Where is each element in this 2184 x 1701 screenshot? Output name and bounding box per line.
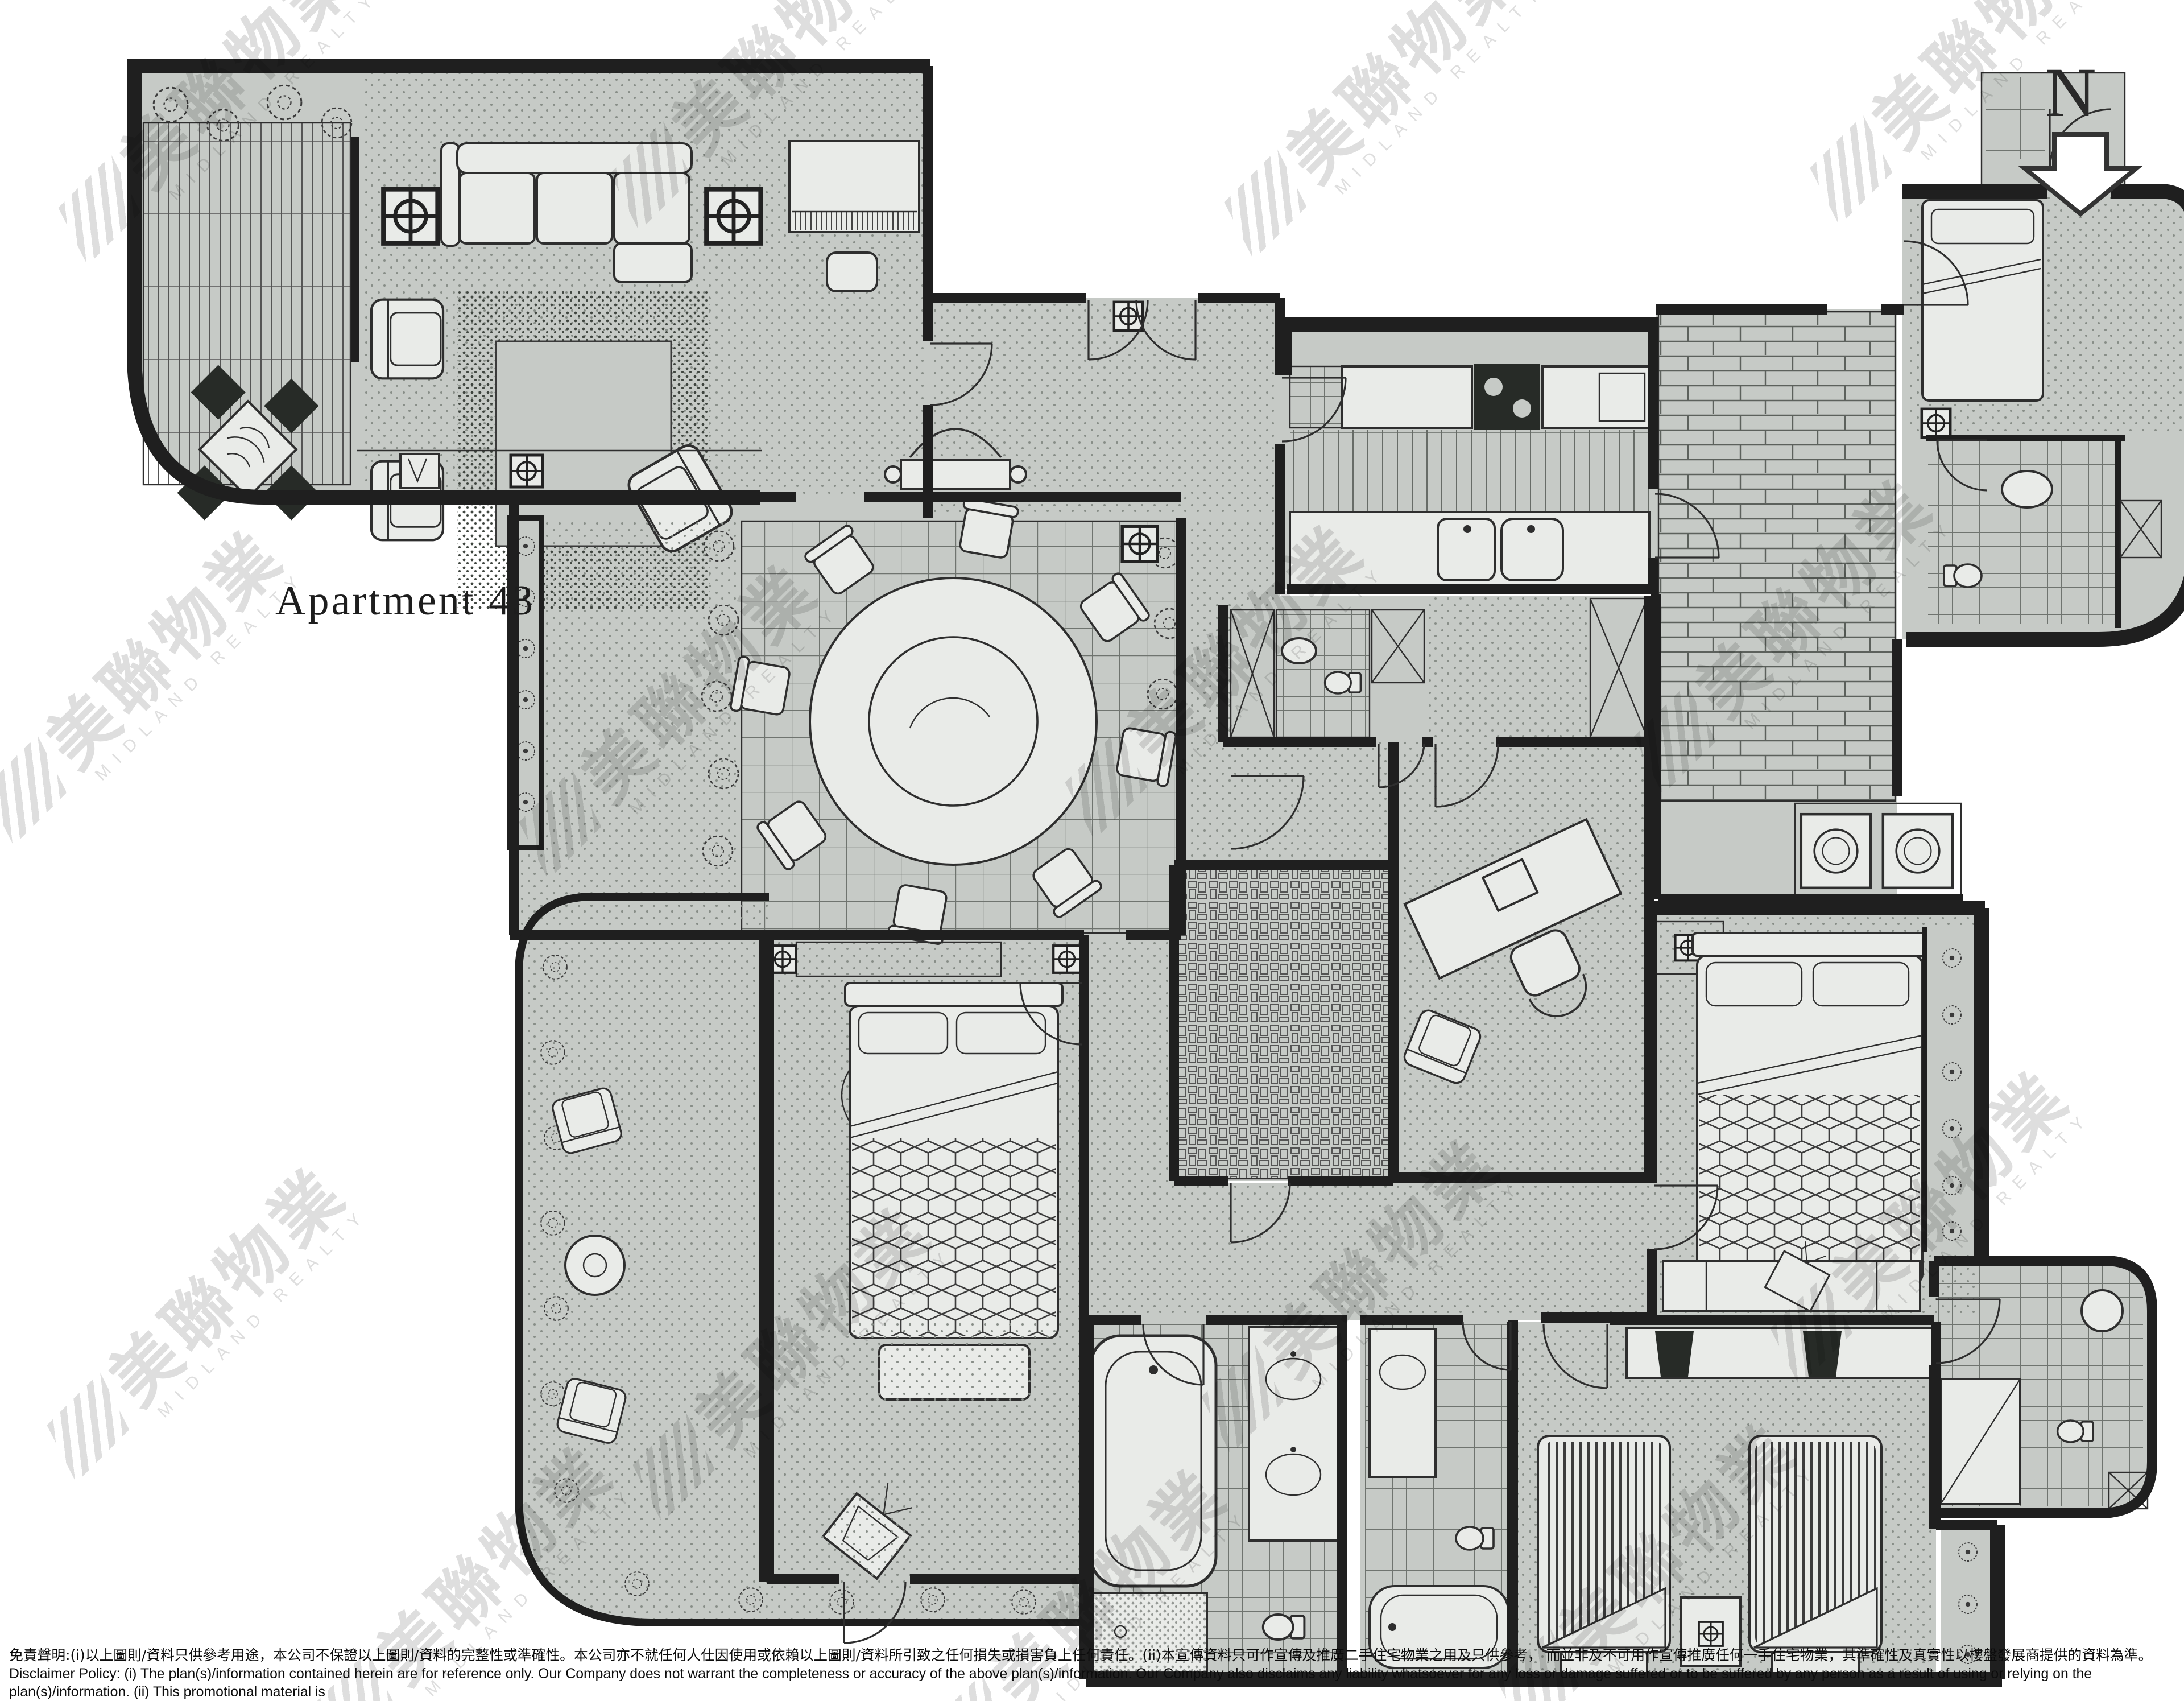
ac-unit-icon bbox=[1122, 526, 1157, 562]
disclaimer-block: 免責聲明:(i)以上圖則/資料只供參考用途，本公司不保證以上圖則/資料的完整性或… bbox=[9, 1646, 2177, 1701]
toilet-icon bbox=[2058, 1421, 2094, 1442]
toilet-icon bbox=[1456, 1527, 1494, 1550]
master-bedroom bbox=[1652, 913, 1979, 1315]
scanned-floor-plan-sheet: Apartment 43 N 美聯物業MIDLAND REALTY 美聯物業MI… bbox=[0, 0, 2184, 1701]
kitchen bbox=[1290, 364, 1649, 587]
floor-plan-page: Apartment 43 N 美聯物業MIDLAND REALTY 美聯物業MI… bbox=[0, 0, 2184, 1701]
bathroom-2 bbox=[1365, 1324, 1508, 1675]
dryer-icon bbox=[1883, 814, 1953, 888]
plant-pot-icon bbox=[1655, 1331, 1694, 1377]
tv-stand-icon bbox=[400, 454, 439, 488]
north-label: N bbox=[2045, 53, 2096, 131]
ac-unit-icon bbox=[1053, 946, 1081, 973]
armchair-icon bbox=[371, 300, 443, 379]
outdoor-table-icon bbox=[565, 1236, 624, 1295]
dining-table-icon bbox=[810, 578, 1097, 865]
vanity-icon bbox=[1249, 1327, 1338, 1541]
shower-icon bbox=[1941, 1379, 2020, 1504]
bathroom-1 bbox=[1091, 1324, 1338, 1675]
washer-icon bbox=[1801, 814, 1871, 888]
ac-unit-icon bbox=[1922, 409, 1950, 437]
single-bed-icon bbox=[1538, 1436, 1670, 1677]
disclaimer-english-line1: Disclaimer Policy: (i) The plan(s)/infor… bbox=[9, 1666, 2177, 1701]
floor-plan-drawing: Apartment 43 N bbox=[0, 0, 2184, 1701]
toilet-icon bbox=[1263, 1615, 1305, 1640]
toilet-icon bbox=[1325, 672, 1361, 693]
sink-icon bbox=[2082, 1290, 2123, 1331]
walk-in-closet bbox=[1176, 867, 1391, 1179]
disclaimer-chinese: 免責聲明:(i)以上圖則/資料只供參考用途，本公司不保證以上圖則/資料的完整性或… bbox=[9, 1646, 2177, 1665]
entrance-foyer bbox=[885, 300, 1277, 515]
cooktop-icon bbox=[1474, 364, 1540, 430]
single-bed-icon bbox=[1922, 200, 2043, 401]
vanity-icon bbox=[1370, 1329, 1436, 1477]
sink-icon bbox=[2002, 471, 2052, 507]
powder-room-strip bbox=[1231, 596, 1647, 737]
twin-bedroom bbox=[1514, 1327, 1977, 1677]
planter-icon bbox=[1925, 927, 1979, 1252]
double-bed-icon bbox=[1693, 933, 1927, 1283]
master-ensuite bbox=[1938, 1265, 2148, 1509]
plan-title: Apartment 43 bbox=[275, 577, 535, 624]
shelf-icon bbox=[1627, 1328, 1934, 1378]
plant-pot-icon bbox=[1803, 1331, 1842, 1377]
corridor bbox=[1089, 938, 1172, 1318]
sink-icon bbox=[1282, 638, 1316, 663]
toilet-icon bbox=[1944, 564, 1982, 587]
dining-room bbox=[510, 498, 1184, 945]
ac-unit-icon bbox=[1699, 1622, 1723, 1646]
bathtub-icon bbox=[1091, 1336, 1216, 1586]
ac-unit-icon bbox=[511, 455, 543, 487]
ac-unit-icon bbox=[383, 189, 437, 243]
ac-unit-icon bbox=[706, 189, 760, 243]
single-bed-icon bbox=[1749, 1436, 1881, 1677]
